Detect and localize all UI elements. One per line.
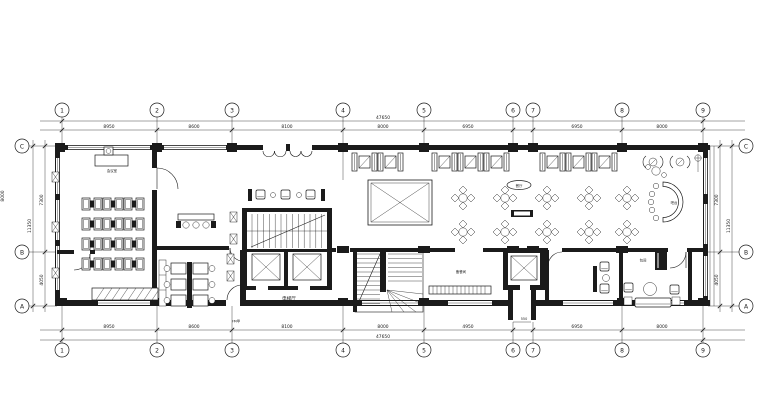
- pantry-label: 备餐间: [456, 269, 467, 274]
- dim-top-overall: 47650: [376, 115, 390, 121]
- dim-top-2: 8600: [188, 124, 199, 130]
- private-room-1: [593, 262, 610, 293]
- grid-bubble-top-5: 5: [422, 107, 426, 114]
- dimension-lines-left: 7300 4050 11350 8000: [0, 140, 47, 312]
- meeting-room: 会议室: [52, 147, 158, 300]
- dimension-lines-top: 47650 8950 8600 8100 8000 6950 6950 8000: [40, 115, 745, 132]
- grid-stems: [29, 117, 739, 343]
- wall-unit: [52, 172, 59, 182]
- dim-bot-3: 8100: [281, 324, 292, 330]
- elevator-right: [293, 254, 321, 280]
- bar-label: 吧台: [671, 200, 678, 205]
- ramp-hatch: [92, 288, 158, 300]
- grid-bubble-bot-7: 7: [531, 347, 535, 354]
- grid-bubble-top-4: 4: [341, 107, 345, 114]
- grid-bubble-top-3: 3: [230, 107, 234, 114]
- grid-bubble-bot-2: 2: [155, 347, 159, 354]
- private-room-label: 包间: [640, 258, 647, 263]
- pantry-room: 备餐间: [429, 269, 491, 294]
- grid-bubble-bot-4: 4: [341, 347, 345, 354]
- dim-top-6: 6950: [571, 124, 582, 130]
- grid-bubble-top-2: 2: [155, 107, 159, 114]
- elevator-left: [252, 254, 280, 280]
- grid-bubble-right-mid: B: [744, 249, 748, 256]
- dim-left-lower: 4050: [39, 274, 45, 285]
- grid-bubble-left-mid: B: [20, 249, 24, 256]
- dim-bot-overall: 47650: [376, 334, 390, 340]
- bar-lounge: 吧台: [643, 155, 701, 222]
- wall-unit: [52, 222, 59, 232]
- dim-top-1: 8950: [103, 124, 114, 130]
- dining-booths: [352, 153, 617, 171]
- wall-unit: [52, 268, 59, 278]
- dimension-lines-bottom: 8950 8600 8100 8000 4950 6950 8000 47650…: [40, 317, 745, 342]
- grid-bubble-top-1: 1: [60, 107, 64, 114]
- meeting-room-label: 会议室: [107, 168, 118, 173]
- office-room: [159, 254, 234, 308]
- skylight-feature: [368, 180, 432, 225]
- grid-bubble-bot-9: 9: [701, 347, 705, 354]
- grid-bubble-top-9: 9: [701, 107, 705, 114]
- dim-bot-6: 6950: [571, 324, 582, 330]
- dim-right-upper: 7300: [714, 194, 720, 205]
- dim-right-overall: 11350: [726, 219, 732, 233]
- grid-bubble-bot-5: 5: [422, 347, 426, 354]
- dining-tables: 餐厅: [451, 181, 639, 244]
- elevator-core: 电梯厅: [230, 189, 332, 302]
- dim-left-overall: 11350: [27, 219, 33, 233]
- shaft-dim: 550: [521, 317, 527, 321]
- grid-bubble-bot-8: 8: [620, 347, 624, 354]
- dim-top-4: 8000: [377, 124, 388, 130]
- dim-bot-1: 8950: [103, 324, 114, 330]
- grid-bubble-top-6: 6: [511, 107, 515, 114]
- grid-bubble-right-top: C: [744, 143, 748, 150]
- grid-bubble-top-8: 8: [620, 107, 624, 114]
- grid-bubble-bot-6: 6: [511, 347, 515, 354]
- door-tag: FM甲: [232, 320, 240, 324]
- dim-bot-2: 8600: [188, 324, 199, 330]
- private-room-2: 包间: [624, 251, 680, 307]
- reception-desk: [176, 214, 216, 228]
- dining-label: 餐厅: [516, 183, 523, 188]
- dim-top-7: 8000: [656, 124, 667, 130]
- dim-bot-7: 8000: [656, 324, 667, 330]
- dim-bot-5: 4950: [462, 324, 473, 330]
- dim-bot-4: 8000: [377, 324, 388, 330]
- grid-bubble-bot-1: 1: [60, 347, 64, 354]
- floor-plan-sheet: 47650 8950 8600 8100 8000 6950 6950 8000…: [0, 0, 760, 410]
- grid-bubble-top-7: 7: [531, 107, 535, 114]
- service-elevator: [503, 248, 545, 322]
- dim-top-5: 6950: [462, 124, 473, 130]
- grid-bubble-bot-3: 3: [230, 347, 234, 354]
- dim-left-upper: 7300: [39, 194, 45, 205]
- floor-plan-drawing: 47650 8950 8600 8100 8000 6950 6950 8000…: [0, 0, 760, 410]
- dim-left-edge: 8000: [0, 190, 6, 201]
- stair-treads: [247, 214, 332, 248]
- dim-right-lower: 4050: [714, 274, 720, 285]
- grid-bubble-left-top: C: [20, 143, 24, 150]
- dim-top-3: 8100: [281, 124, 292, 130]
- elevator-hall-label: 电梯厅: [282, 295, 296, 302]
- dimension-lines-right: 7300 4050 11350: [714, 140, 734, 312]
